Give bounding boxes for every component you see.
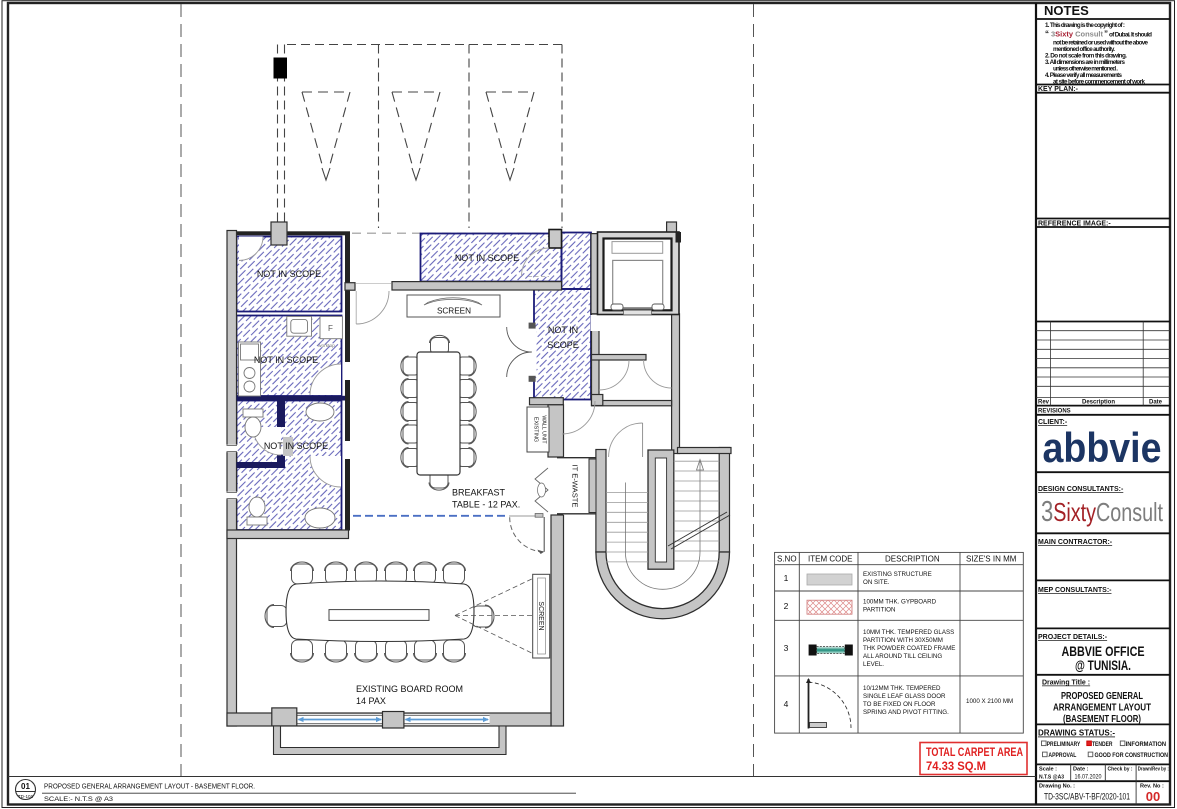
svg-text:@ TUNISIA.: @ TUNISIA. xyxy=(1075,658,1131,673)
svg-text:DESIGN CONSULTANTS:-: DESIGN CONSULTANTS:- xyxy=(1038,486,1124,493)
svg-text:SPRING AND PIVOT FITTING.: SPRING AND PIVOT FITTING. xyxy=(863,709,949,716)
svg-text:IT E-WASTE: IT E-WASTE xyxy=(571,464,580,507)
svg-text:NOT IN: NOT IN xyxy=(548,325,578,335)
svg-text:N.T.S @A3: N.T.S @A3 xyxy=(1039,775,1064,781)
svg-text:01: 01 xyxy=(21,782,30,791)
svg-text:DRAWING STATUS:-: DRAWING STATUS:- xyxy=(1038,729,1115,738)
svg-text:SIZE'S IN MM: SIZE'S IN MM xyxy=(966,555,1017,564)
svg-text:KEY PLAN:-: KEY PLAN:- xyxy=(1038,86,1079,93)
svg-text:Description: Description xyxy=(1082,400,1115,406)
svg-text:EXISTING BOARD ROOM: EXISTING BOARD ROOM xyxy=(356,684,463,694)
svg-text:PARTITION WITH 30X50MM: PARTITION WITH 30X50MM xyxy=(863,637,943,644)
svg-text:WALL UNIT: WALL UNIT xyxy=(541,415,547,444)
svg-text:PROPOSED GENERAL: PROPOSED GENERAL xyxy=(1061,690,1143,702)
svg-text:Drawn/Rev by :: Drawn/Rev by : xyxy=(1138,767,1169,773)
svg-text:at site before commencement of: at site before commencement of work xyxy=(1053,78,1145,85)
svg-text:abbvie: abbvie xyxy=(1043,424,1162,471)
svg-text:NOTES: NOTES xyxy=(1044,3,1089,18)
svg-text:Rev: Rev xyxy=(1038,400,1050,406)
svg-text:1000 X 2100 MM: 1000 X 2100 MM xyxy=(966,698,1013,705)
svg-text:DESCRIPTION: DESCRIPTION xyxy=(885,555,940,564)
svg-text:Scale :: Scale : xyxy=(1039,767,1057,773)
svg-text:14 PAX: 14 PAX xyxy=(356,696,386,706)
svg-text:3Sixty Consult: 3Sixty Consult xyxy=(1051,30,1104,39)
svg-text:NOT IN SCOPE: NOT IN SCOPE xyxy=(264,441,328,451)
svg-text:TABLE - 12 PAX.: TABLE - 12 PAX. xyxy=(452,500,520,510)
svg-text:100MM THK. GYPBOARD: 100MM THK. GYPBOARD xyxy=(863,599,937,606)
svg-text:MEP CONSULTANTS:-: MEP CONSULTANTS:- xyxy=(1038,587,1112,594)
svg-text:00: 00 xyxy=(1146,789,1160,804)
svg-text:74.33 SQ.M: 74.33 SQ.M xyxy=(926,761,986,773)
svg-text:10/12MM THK. TEMPERED: 10/12MM THK. TEMPERED xyxy=(863,685,941,692)
svg-text:SCREEN: SCREEN xyxy=(437,307,471,316)
svg-text:TO BE FIXED ON FLOOR: TO BE FIXED ON FLOOR xyxy=(863,701,936,708)
svg-text:3: 3 xyxy=(784,643,789,653)
svg-text:LEVEL.: LEVEL. xyxy=(863,661,884,668)
svg-text:Date: Date xyxy=(1149,400,1163,406)
svg-text:SINGLE LEAF GLASS DOOR: SINGLE LEAF GLASS DOOR xyxy=(863,693,946,700)
svg-text:PROJECT DETAILS:-: PROJECT DETAILS:- xyxy=(1038,634,1108,641)
svg-text:Date :: Date : xyxy=(1073,767,1089,773)
svg-text:TD-3SC/ABV-T-BF/2020-101: TD-3SC/ABV-T-BF/2020-101 xyxy=(1044,792,1130,802)
svg-text:F: F xyxy=(328,324,333,333)
svg-text:PRELIMINARY: PRELIMINARY xyxy=(1047,742,1081,748)
svg-text:3SixtyConsult: 3SixtyConsult xyxy=(1041,496,1164,528)
svg-text:EXISTING STRUCTURE: EXISTING STRUCTURE xyxy=(863,571,932,578)
svg-text:EXISTING: EXISTING xyxy=(533,417,539,442)
svg-text:10MM THK. TEMPERED GLASS: 10MM THK. TEMPERED GLASS xyxy=(863,629,954,636)
svg-text:THK POWDER COATED FRAME: THK POWDER COATED FRAME xyxy=(863,645,955,652)
svg-text:BREAKFAST: BREAKFAST xyxy=(452,488,506,498)
svg-text:SCOPE: SCOPE xyxy=(547,340,579,350)
svg-text:PROPOSED GENERAL ARRANGEMENT L: PROPOSED GENERAL ARRANGEMENT LAYOUT - BA… xyxy=(44,782,255,791)
svg-text:MAIN CONTRACTOR:-: MAIN CONTRACTOR:- xyxy=(1038,539,1113,546)
svg-text:TD-101: TD-101 xyxy=(18,794,34,799)
svg-text:SCREEN: SCREEN xyxy=(537,601,544,630)
svg-text:ALL AROUND TILL CEILING: ALL AROUND TILL CEILING xyxy=(863,653,942,660)
svg-text:1: 1 xyxy=(784,573,789,583)
svg-text:TOTAL CARPET AREA: TOTAL CARPET AREA xyxy=(926,747,1023,759)
svg-text:ITEM CODE: ITEM CODE xyxy=(808,555,852,564)
svg-text:ABBVIE OFFICE: ABBVIE OFFICE xyxy=(1062,644,1145,659)
svg-text:1. This drawing is the copyrig: 1. This drawing is the copyright of : xyxy=(1045,22,1125,29)
svg-text:Check by :: Check by : xyxy=(1108,767,1133,773)
svg-text:16.07.2020: 16.07.2020 xyxy=(1075,774,1102,781)
svg-text:Drawing No. :: Drawing No. : xyxy=(1039,784,1075,790)
svg-text:PARTITION: PARTITION xyxy=(863,607,895,614)
svg-text:(BASEMENT FLOOR): (BASEMENT FLOOR) xyxy=(1063,713,1141,725)
svg-text:APPROVAL: APPROVAL xyxy=(1048,753,1076,759)
svg-text:REFERENCE IMAGE:-: REFERENCE IMAGE:- xyxy=(1038,221,1111,228)
svg-text:ARRANGEMENT LAYOUT: ARRANGEMENT LAYOUT xyxy=(1053,702,1151,714)
svg-text:NOT IN SCOPE: NOT IN SCOPE xyxy=(257,269,321,279)
svg-text:GOOD FOR CONSTRUCTION: GOOD FOR CONSTRUCTION xyxy=(1095,753,1169,759)
svg-text:NOT IN SCOPE: NOT IN SCOPE xyxy=(455,253,519,263)
svg-text:of Dubai. It should: of Dubai. It should xyxy=(1109,32,1152,39)
svg-text:NOT IN SCOPE: NOT IN SCOPE xyxy=(254,355,318,365)
svg-text:worktop: worktop xyxy=(318,343,335,349)
svg-text:TENDER: TENDER xyxy=(1092,742,1113,748)
svg-text:Drawing Title :: Drawing Title : xyxy=(1042,680,1090,687)
svg-text:”: ” xyxy=(1104,30,1108,39)
svg-text:SCALE:- N.T.S @ A3: SCALE:- N.T.S @ A3 xyxy=(44,796,113,803)
svg-text:“: “ xyxy=(1045,30,1049,39)
svg-text:4: 4 xyxy=(784,699,789,709)
svg-text:REVISIONS: REVISIONS xyxy=(1038,409,1071,415)
svg-text:2: 2 xyxy=(784,601,789,611)
svg-text:ON SITE.: ON SITE. xyxy=(863,579,890,586)
svg-text:INFORMATION: INFORMATION xyxy=(1126,742,1167,748)
svg-text:S.NO: S.NO xyxy=(777,555,797,564)
